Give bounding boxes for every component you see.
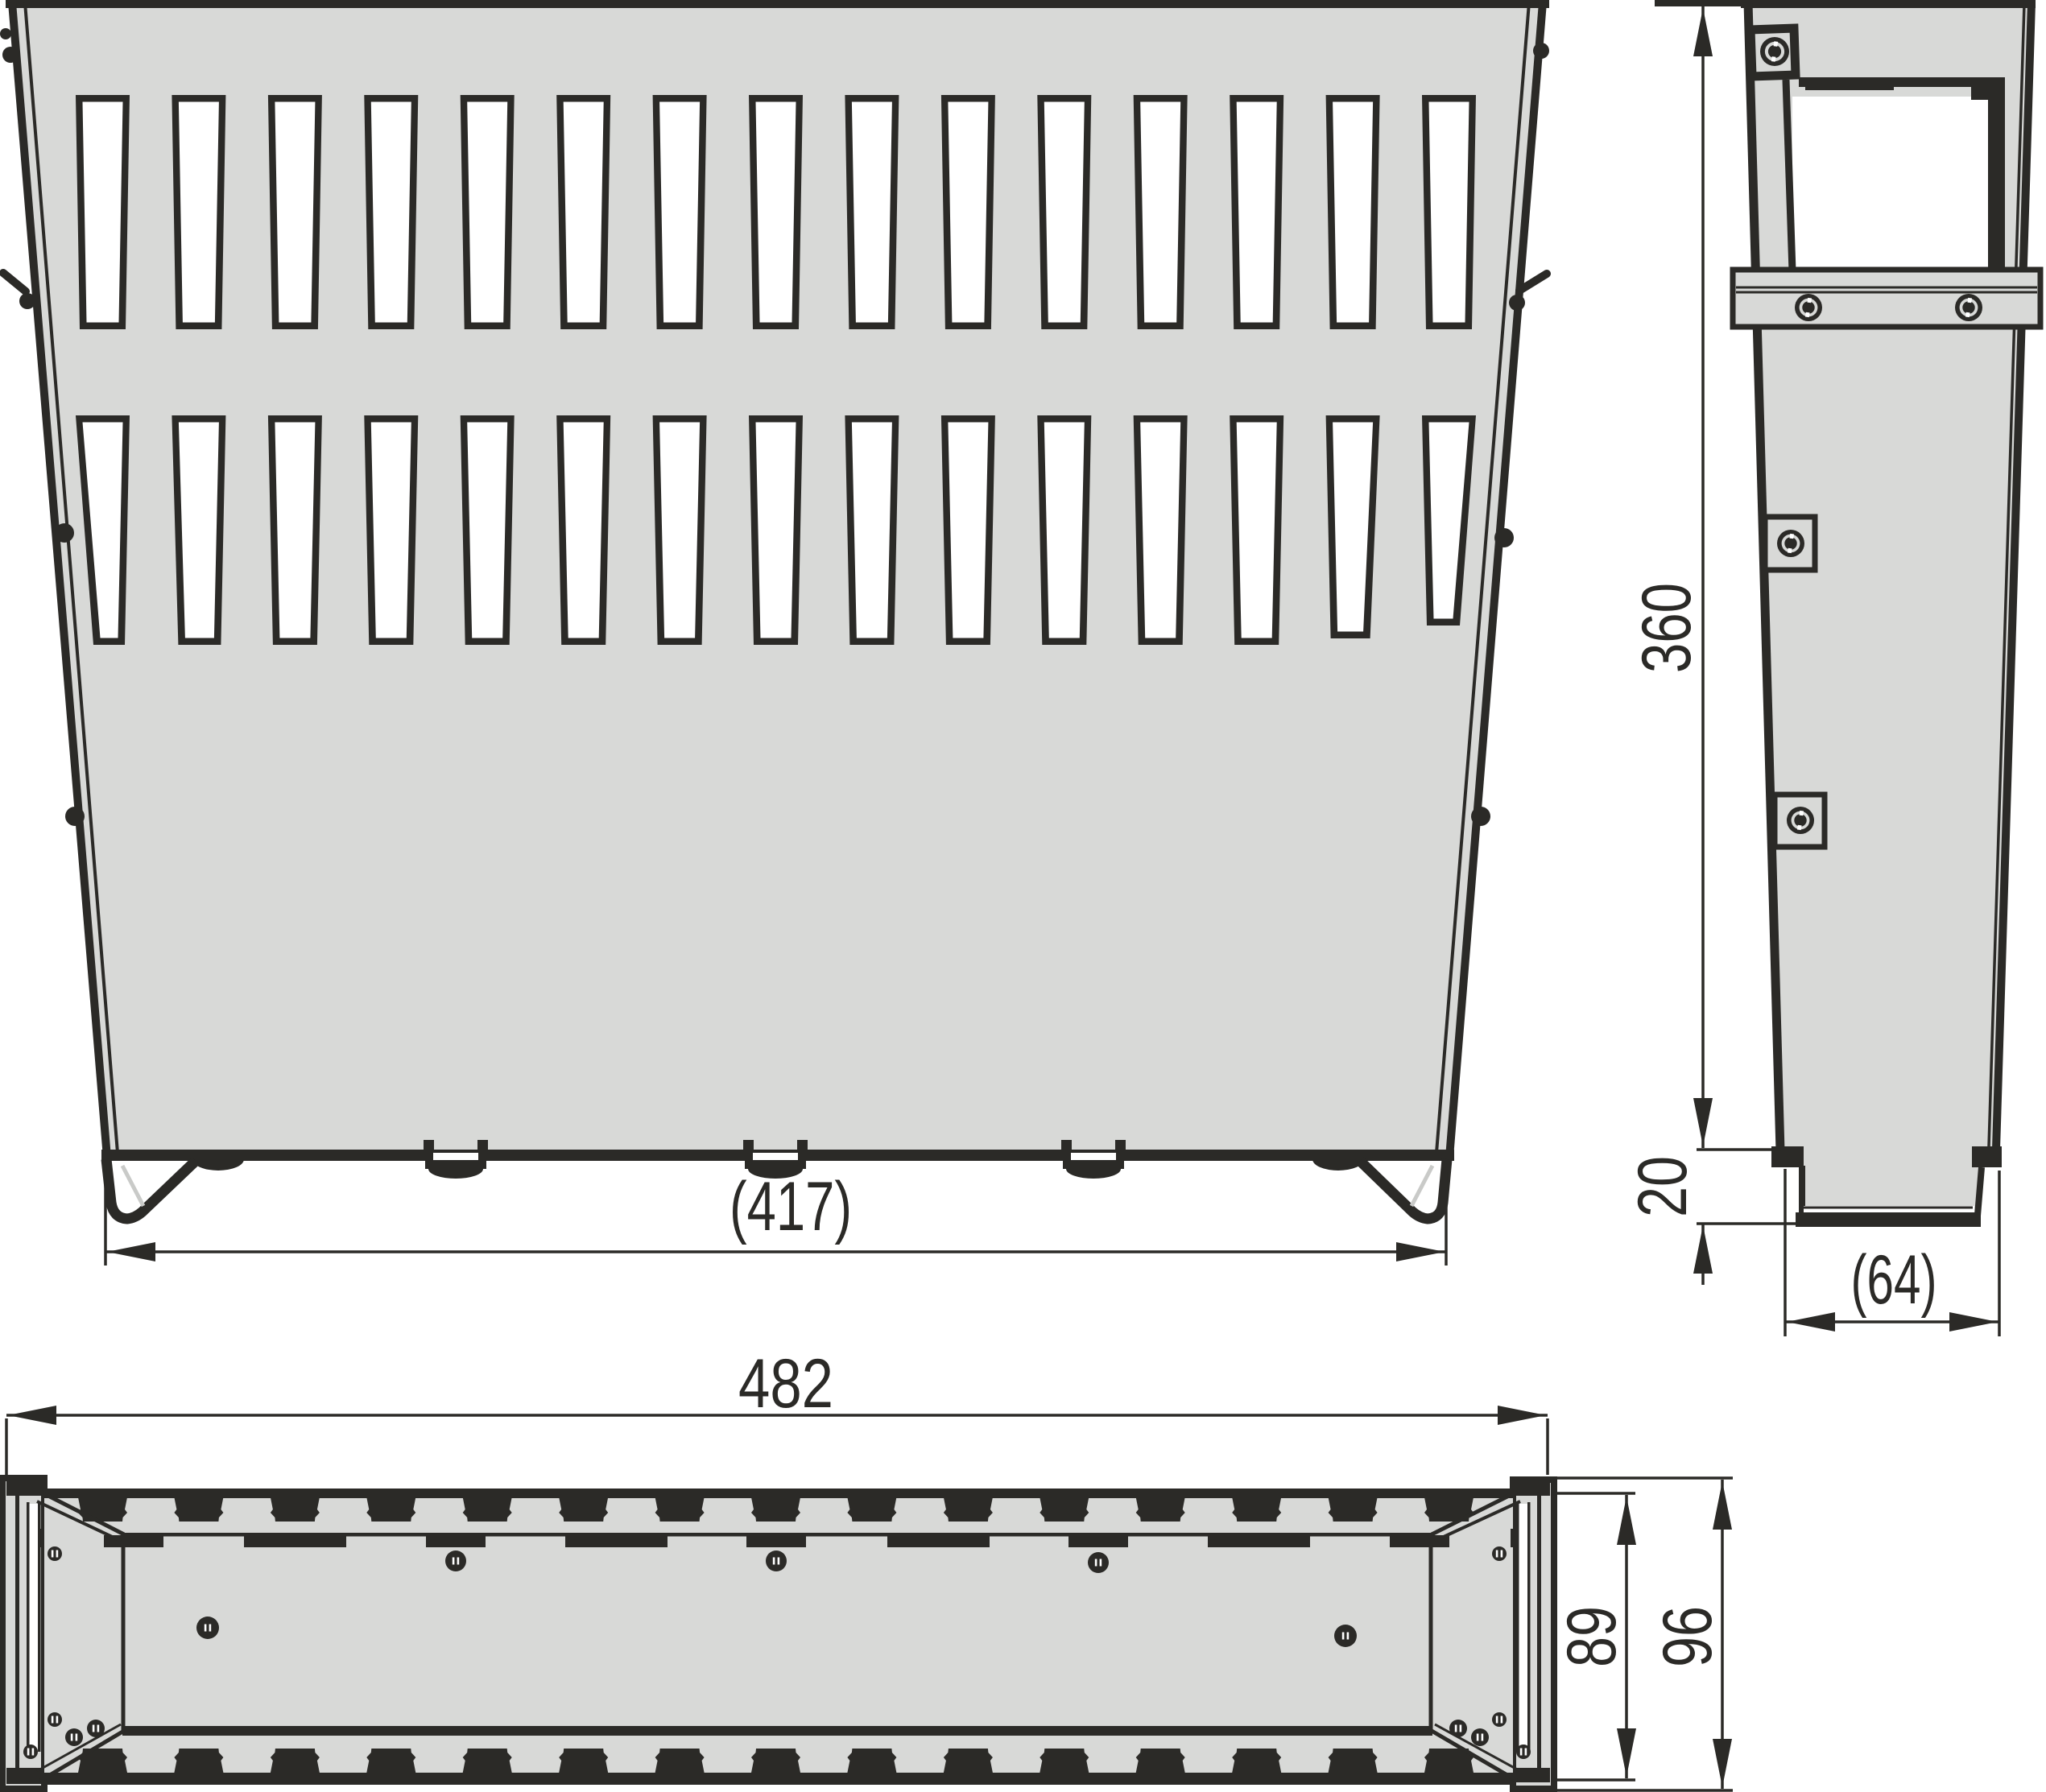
svg-text:96: 96 (1649, 1606, 1726, 1667)
svg-text:(64): (64) (1851, 1241, 1937, 1319)
svg-text:(417): (417) (730, 1168, 852, 1245)
svg-text:20: 20 (1624, 1156, 1701, 1217)
svg-text:360: 360 (1628, 583, 1705, 673)
svg-text:89: 89 (1553, 1606, 1631, 1667)
svg-text:482: 482 (738, 1345, 833, 1422)
